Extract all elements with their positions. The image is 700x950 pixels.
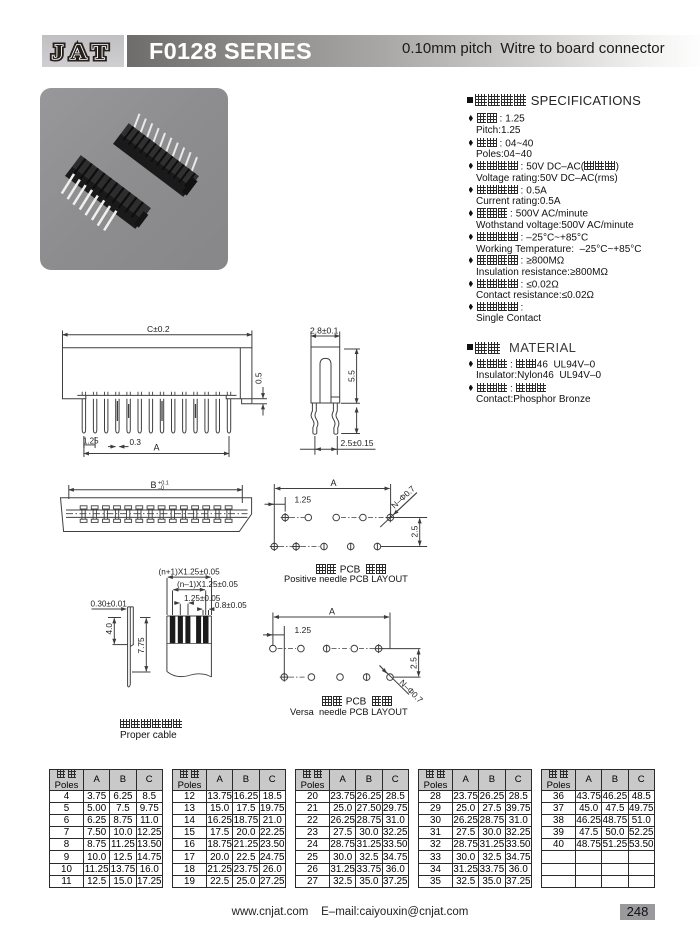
svg-text:2.5±0.15: 2.5±0.15 — [341, 438, 374, 448]
svg-text:–0: –0 — [158, 486, 164, 492]
svg-text:2.8±0.1: 2.8±0.1 — [310, 326, 339, 336]
svg-text:N–Φ0.7: N–Φ0.7 — [398, 677, 426, 705]
svg-text:(n–1)X1.25±0.05: (n–1)X1.25±0.05 — [177, 580, 238, 589]
svg-text:A: A — [329, 607, 335, 617]
svg-text:2.5: 2.5 — [409, 525, 419, 537]
svg-text:1.25: 1.25 — [83, 437, 99, 446]
svg-text:0.8±0.05: 0.8±0.05 — [215, 601, 247, 610]
svg-text:A: A — [154, 443, 160, 453]
svg-text:(n+1)X1.25±0.05: (n+1)X1.25±0.05 — [159, 567, 221, 576]
svg-text:0.30±0.01: 0.30±0.01 — [91, 600, 128, 609]
svg-text:5.5: 5.5 — [347, 370, 357, 382]
svg-text:C±0.2: C±0.2 — [147, 324, 170, 334]
svg-text:0.5: 0.5 — [254, 372, 264, 384]
svg-text:B: B — [151, 480, 157, 490]
svg-text:1.25: 1.25 — [295, 625, 312, 635]
svg-text:2.5: 2.5 — [408, 657, 418, 669]
svg-text:0.3: 0.3 — [130, 438, 142, 447]
svg-text:7.75: 7.75 — [136, 637, 146, 654]
svg-text:1.25: 1.25 — [295, 495, 312, 505]
svg-text:A: A — [331, 478, 337, 488]
svg-text:4.0: 4.0 — [104, 623, 114, 635]
